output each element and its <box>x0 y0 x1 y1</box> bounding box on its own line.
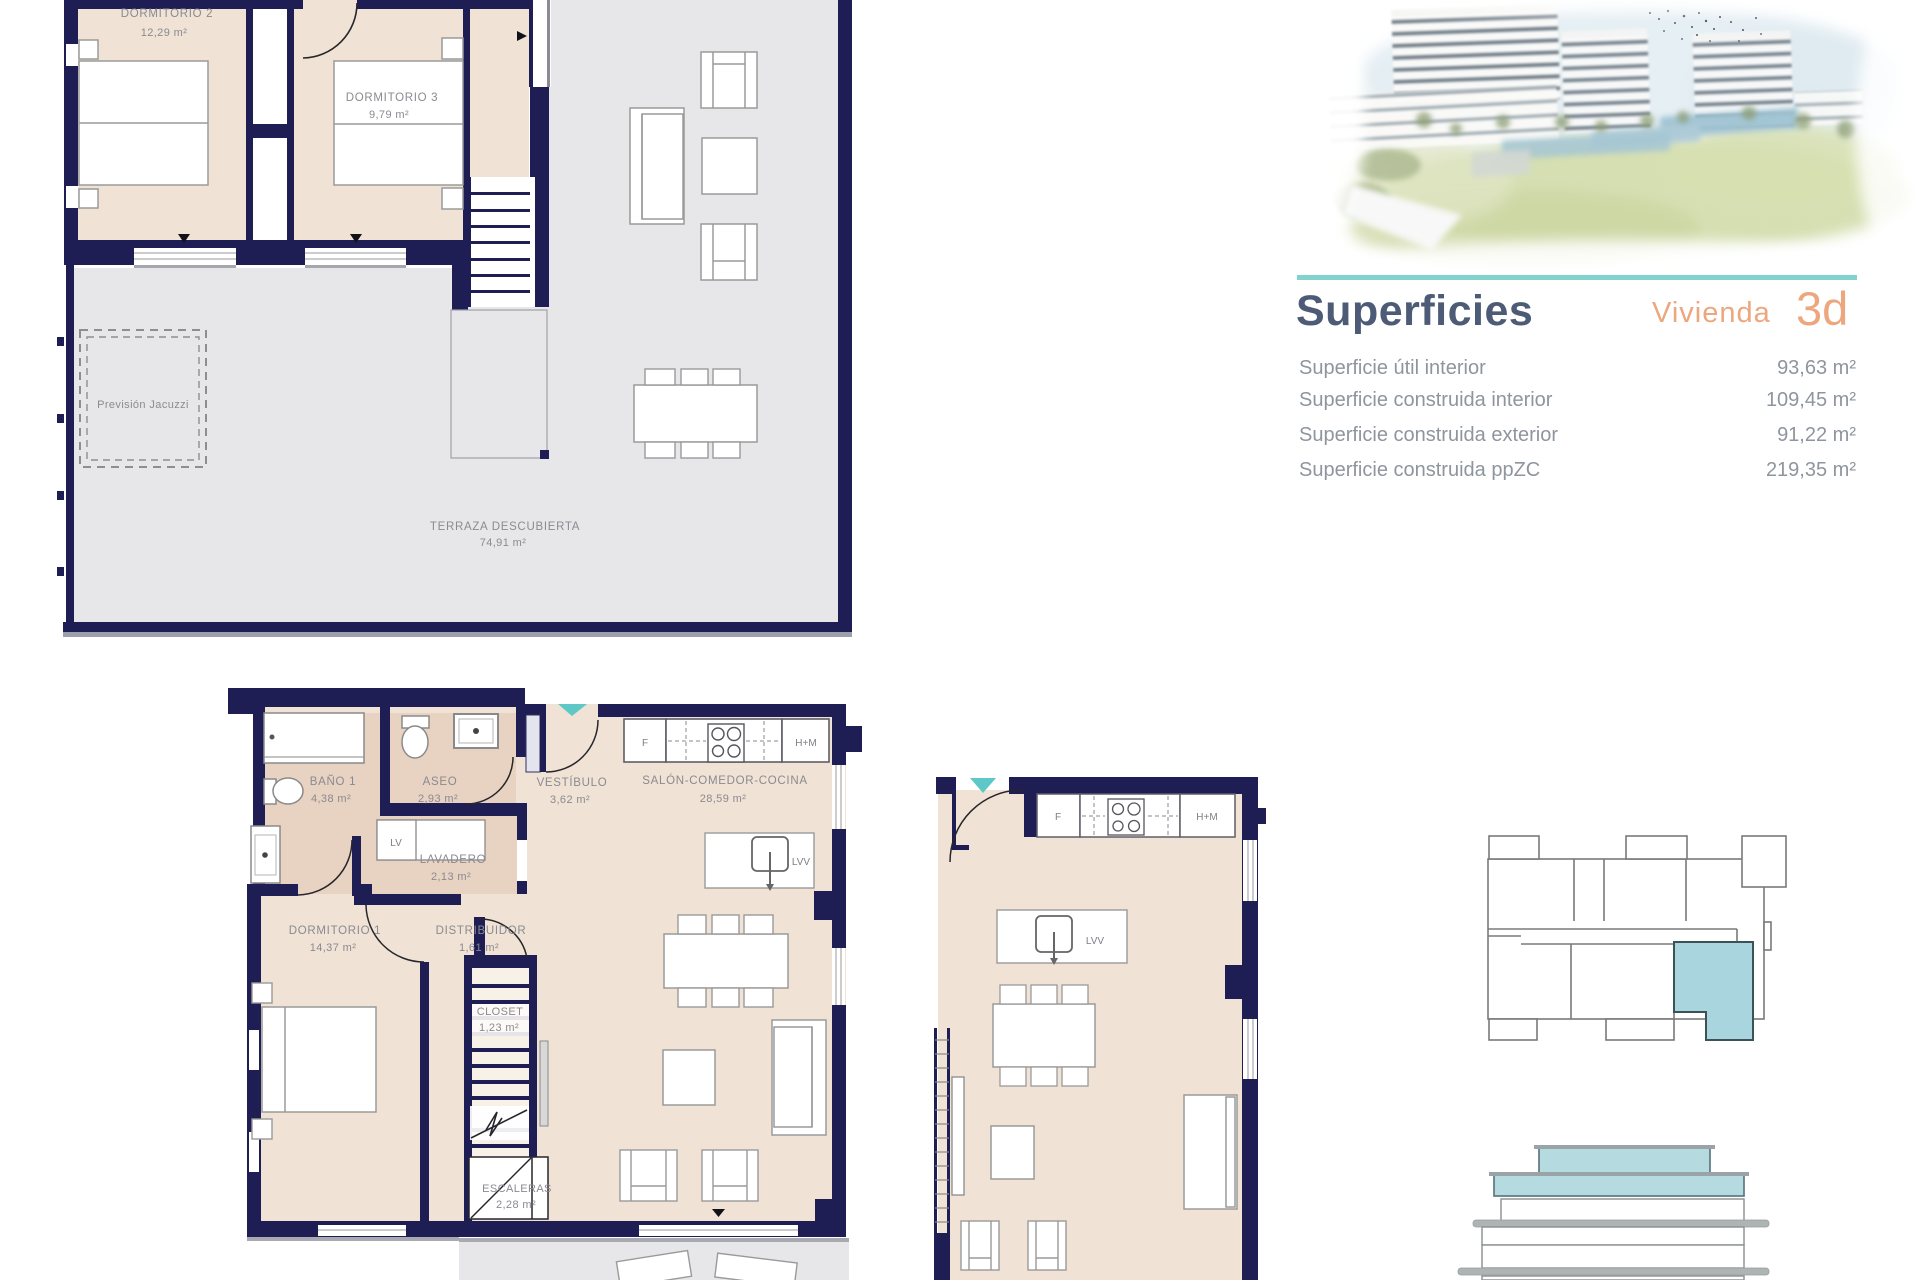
svg-text:F: F <box>642 738 648 749</box>
svg-text:DORMITORIO 3: DORMITORIO 3 <box>346 92 439 104</box>
svg-text:28,59 m²: 28,59 m² <box>700 793 747 805</box>
svg-text:F: F <box>1055 812 1061 823</box>
svg-text:BAÑO 1: BAÑO 1 <box>310 775 356 788</box>
svg-text:1,61 m²: 1,61 m² <box>459 942 499 954</box>
svg-text:ESCALERAS: ESCALERAS <box>482 1183 552 1195</box>
svg-text:DISTRIBUIDOR: DISTRIBUIDOR <box>436 925 527 937</box>
svg-text:14,37 m²: 14,37 m² <box>310 942 357 954</box>
svg-text:Superficie útil interior: Superficie útil interior <box>1299 357 1486 379</box>
svg-text:Superficie construida ppZC: Superficie construida ppZC <box>1299 459 1540 481</box>
svg-text:SALÓN-COMEDOR-COCINA: SALÓN-COMEDOR-COCINA <box>642 774 807 787</box>
svg-text:DORMITORIO 1: DORMITORIO 1 <box>289 925 382 937</box>
svg-text:ASEO: ASEO <box>423 776 458 788</box>
svg-text:H+M: H+M <box>795 738 816 749</box>
svg-text:4,38 m²: 4,38 m² <box>311 793 351 805</box>
svg-text:2,13 m²: 2,13 m² <box>431 871 471 883</box>
svg-text:91,22 m²: 91,22 m² <box>1777 424 1856 446</box>
svg-text:H+M: H+M <box>1196 812 1217 823</box>
svg-text:VESTÍBULO: VESTÍBULO <box>537 776 608 789</box>
svg-text:3,62 m²: 3,62 m² <box>550 794 590 806</box>
svg-text:Previsión Jacuzzi: Previsión Jacuzzi <box>97 399 189 411</box>
svg-text:3d: 3d <box>1796 282 1848 335</box>
svg-text:LVV: LVV <box>792 857 810 868</box>
svg-text:219,35 m²: 219,35 m² <box>1766 459 1856 481</box>
svg-text:2,93 m²: 2,93 m² <box>418 793 458 805</box>
svg-text:LVV: LVV <box>1086 936 1104 947</box>
svg-text:LAVADERO: LAVADERO <box>420 854 487 866</box>
svg-text:74,91 m²: 74,91 m² <box>480 537 527 549</box>
svg-text:CLOSET: CLOSET <box>477 1006 523 1018</box>
svg-text:DORMITORIO 2: DORMITORIO 2 <box>121 8 214 20</box>
svg-text:93,63 m²: 93,63 m² <box>1777 357 1856 379</box>
svg-text:109,45 m²: 109,45 m² <box>1766 389 1856 411</box>
svg-text:12,29 m²: 12,29 m² <box>141 27 188 39</box>
svg-text:2,28 m²: 2,28 m² <box>496 1199 536 1211</box>
svg-text:LV: LV <box>390 838 402 849</box>
svg-text:1,23 m²: 1,23 m² <box>479 1022 519 1034</box>
svg-text:Superficie construida exterior: Superficie construida exterior <box>1299 424 1558 446</box>
svg-text:Superficie construida interior: Superficie construida interior <box>1299 389 1553 411</box>
svg-text:Vivienda: Vivienda <box>1652 297 1771 329</box>
svg-text:Superficies: Superficies <box>1296 287 1533 335</box>
svg-text:9,79 m²: 9,79 m² <box>369 109 409 121</box>
svg-text:TERRAZA DESCUBIERTA: TERRAZA DESCUBIERTA <box>430 521 580 533</box>
